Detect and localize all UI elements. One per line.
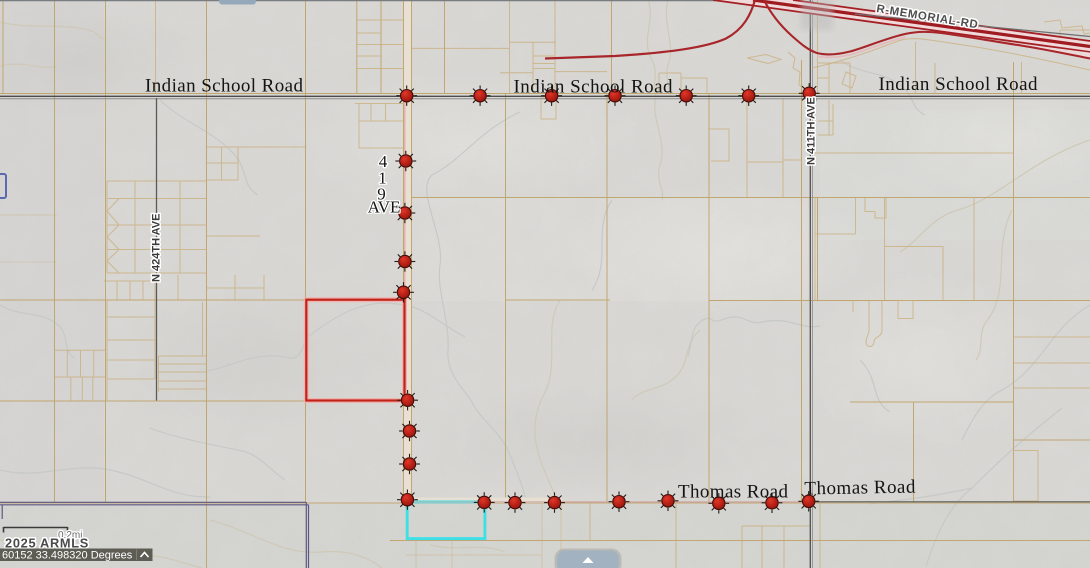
svg-text:Indian School Road: Indian School Road (879, 74, 1039, 95)
svg-text:Thomas Road: Thomas Road (804, 477, 916, 500)
svg-text:N 411TH AVE: N 411TH AVE (806, 97, 818, 165)
svg-text:N 424TH AVE: N 424TH AVE (151, 214, 163, 282)
svg-text:AVE: AVE (368, 198, 401, 217)
svg-text:Thomas Road: Thomas Road (678, 482, 789, 503)
svg-text:Indian School Road: Indian School Road (145, 76, 304, 97)
svg-text:2025 ARMLS: 2025 ARMLS (5, 536, 89, 551)
svg-text:60152 33.498320 Degrees: 60152 33.498320 Degrees (2, 549, 133, 561)
svg-text:Indian School Road: Indian School Road (514, 77, 674, 98)
